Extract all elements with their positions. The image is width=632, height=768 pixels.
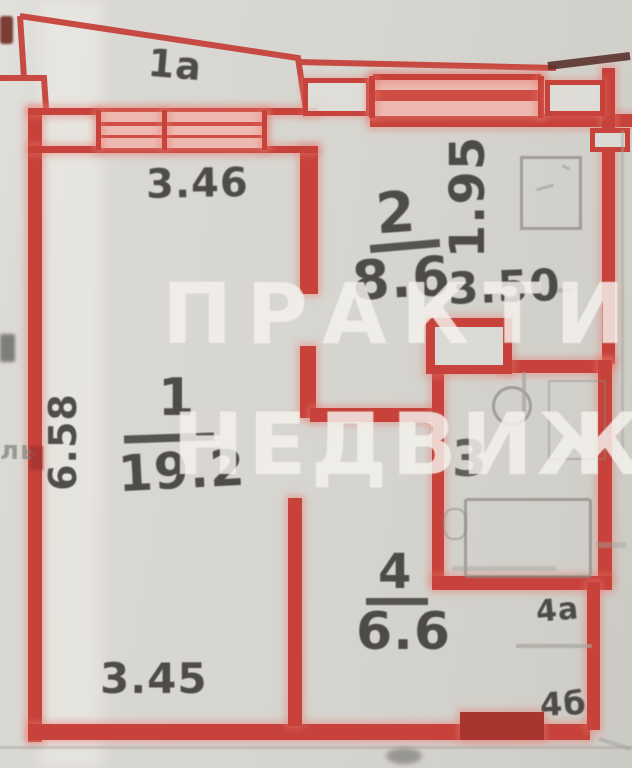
wall-left-outer — [28, 108, 42, 742]
bottom-smudge — [386, 748, 422, 764]
room4-number: 4 — [378, 548, 412, 596]
window2-border-top — [373, 74, 541, 80]
wall-bathroom-bottom — [432, 576, 612, 590]
wall-pier-box — [590, 128, 630, 152]
window1-mullion-middle — [162, 110, 167, 150]
dim-room1-left: 6.58 — [44, 377, 88, 507]
window2-left-cell — [303, 78, 371, 116]
pencil-note-line-2 — [596, 542, 626, 548]
closet-a-label: 4а — [535, 594, 581, 628]
room4-area: 6.6 — [356, 606, 451, 658]
floorplan-photo: 1а 3.46 2 8.6 1.95 3.50 6.58 1 19.2 3 4 … — [0, 0, 632, 768]
window1-mullion-left — [96, 110, 101, 150]
window2-right-cell — [545, 80, 605, 116]
pencil-note-line-1 — [452, 566, 556, 571]
entrance-door — [460, 712, 544, 740]
paper-edge-shadow — [0, 746, 632, 749]
wall-right-outer-lower — [587, 582, 600, 730]
watermark-line2: НЕДВИЖИМ — [172, 402, 632, 488]
dim-kitchen-right: 1.95 — [444, 132, 492, 262]
top-left-blob — [0, 16, 13, 44]
closet-b-label: 4б — [539, 687, 587, 721]
left-edge-wedge — [0, 334, 15, 362]
wall-divider-lower — [288, 498, 302, 726]
window2-mullion-left — [369, 76, 375, 118]
window2-mullion-right — [538, 76, 544, 118]
plan-layer — [0, 0, 632, 768]
dim-room1-top: 3.46 — [146, 163, 249, 205]
watermark-line1: ПРАКТИ — [162, 272, 632, 356]
dim-room1-bottom: 3.45 — [100, 658, 208, 700]
wall-dark-spot — [30, 446, 43, 470]
window1-glazing — [100, 112, 266, 148]
closet-divider-line — [516, 644, 592, 648]
balcony-label: 1а — [146, 44, 203, 87]
window1-mullion-right — [262, 110, 267, 150]
toilet-fixture — [443, 508, 467, 540]
room2-number: 2 — [374, 185, 418, 244]
window2-glazing — [373, 76, 541, 116]
kitchen-sink-fixture — [520, 156, 582, 230]
